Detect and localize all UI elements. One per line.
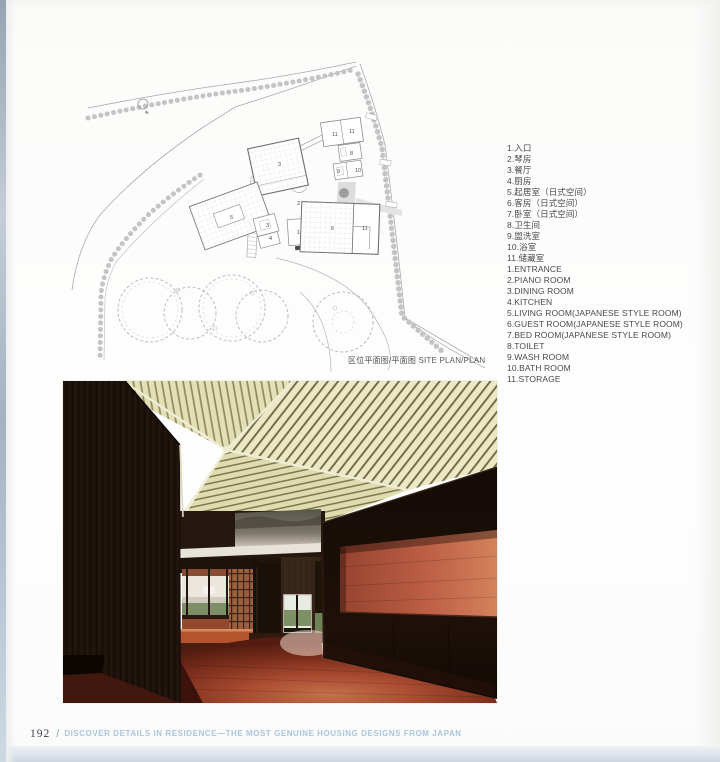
book-page: 11118910325341611 区位平面图/平面图 SITE PLAN/PL… (0, 0, 720, 762)
page-number: 192 (30, 728, 50, 740)
legend-line: 1.入口 (507, 143, 707, 154)
legend-line: 4.厨房 (507, 176, 707, 187)
legend-line: 2.PIANO ROOM (507, 275, 707, 286)
plan-buildings (189, 113, 397, 258)
plan-room-number: 11 (332, 132, 338, 138)
legend-line: 10.BATH ROOM (507, 363, 707, 374)
plan-room-guest (300, 202, 380, 255)
plan-room-number: 9 (337, 169, 340, 175)
plan-room-number: 11 (362, 226, 368, 232)
footer-slash: / (56, 728, 59, 740)
distant-hill-view (235, 509, 321, 549)
page-footer: 192/DISCOVER DETAILS IN RESIDENCE—THE MO… (30, 724, 462, 740)
legend-line: 8.TOILET (507, 341, 707, 352)
legend-line: 2.琴房 (507, 154, 707, 165)
footer-title: DISCOVER DETAILS IN RESIDENCE—THE MOST G… (64, 729, 461, 738)
legend-line: 10.浴室 (507, 242, 707, 253)
left-wood-column (63, 381, 183, 703)
plan-room-number: 2 (297, 201, 300, 207)
middle-hall (175, 509, 325, 651)
legend-line: 3.DINING ROOM (507, 286, 707, 297)
plan-room-number: 8 (350, 151, 353, 157)
plan-caption-cn: 区位平面图/平面图 (348, 356, 416, 365)
ceiling-apex (223, 447, 230, 454)
site-plan-figure: 11118910325341611 (30, 50, 500, 380)
plan-trees (118, 275, 373, 352)
legend-line: 9.WASH ROOM (507, 352, 707, 363)
legend-chinese: 1.入口2.琴房3.餐厅4.厨房5.起居室（日式空间）6.客房（日式空间）7.卧… (507, 143, 707, 264)
site-plan-drawing: 11118910325341611 (30, 50, 500, 380)
plan-room-number: 6 (331, 226, 334, 232)
legend-line: 11.储藏室 (507, 253, 707, 264)
garden-window (284, 595, 311, 632)
hedge-fence-line (104, 179, 204, 360)
legend-line: 6.GUEST ROOM(JAPANESE STYLE ROOM) (507, 319, 707, 330)
legend-line: 8.卫生间 (507, 220, 707, 231)
column-fascia (180, 445, 183, 517)
plan-room-number: 10 (355, 168, 361, 174)
interior-photo (63, 381, 497, 703)
plan-room-number: 4 (269, 236, 272, 242)
plan-room-number: 3 (278, 162, 281, 168)
legend-line: 5.起居室（日式空间） (507, 187, 707, 198)
floor-step (63, 655, 105, 675)
plan-storage-pair (321, 117, 364, 146)
plan-room-number: 1 (297, 230, 300, 236)
plan-room-number: 3 (266, 223, 269, 229)
plan-caption-en: SITE PLAN/PLAN (418, 356, 485, 365)
legend-line: 4.KITCHEN (507, 297, 707, 308)
plan-room-number: 11 (349, 129, 355, 135)
legend-line: 7.卧室（日式空间） (507, 209, 707, 220)
plan-caption: 区位平面图/平面图 SITE PLAN/PLAN (348, 355, 485, 366)
legend-line: 5.LIVING ROOM(JAPANESE STYLE ROOM) (507, 308, 707, 319)
plan-room-number: 5 (230, 215, 233, 221)
legend-line: 9.盥洗室 (507, 231, 707, 242)
plan-retaining-blocks (365, 113, 397, 208)
left-opening-exterior (182, 569, 229, 637)
legend-line: 3.餐厅 (507, 165, 707, 176)
panel-sheen (256, 567, 258, 643)
legend-line: 7.BED ROOM(JAPANESE STYLE ROOM) (507, 330, 707, 341)
legend-line: 6.客房（日式空间） (507, 198, 707, 209)
page-left-edge-fade (6, 0, 16, 762)
interior-photo-art (63, 381, 497, 703)
legend-line: 11.STORAGE (507, 374, 707, 385)
legend-line: 1.ENTRANCE (507, 264, 707, 275)
legend-english: 1.ENTRANCE2.PIANO ROOM3.DINING ROOM4.KIT… (507, 264, 707, 385)
page-bottom-edge (0, 746, 720, 762)
page-top-shade (0, 0, 720, 10)
